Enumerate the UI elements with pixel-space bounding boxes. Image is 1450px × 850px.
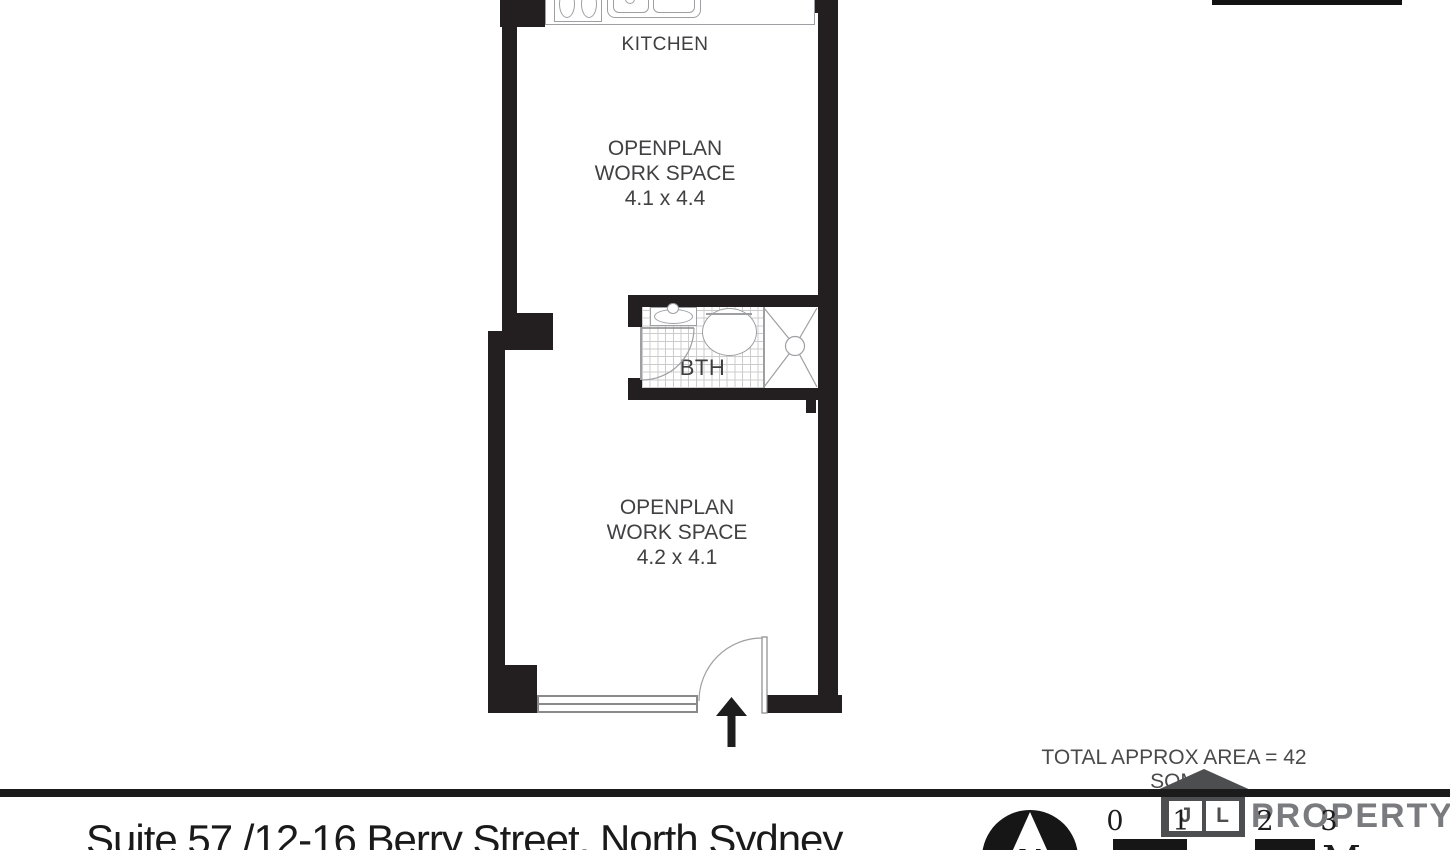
scale-bar-segment [1113,839,1187,850]
toilet-cistern-line [706,313,752,315]
compass-arrow-icon [1012,812,1048,850]
window-line-mid [537,703,698,705]
kitchen-label: KITCHEN [565,34,765,56]
shower-icon [764,308,817,387]
logo-letter-l: L [1206,801,1239,831]
wall-bath-left-upper [628,295,642,327]
shower-drain-icon [786,337,805,356]
cropped-header-bar [1212,0,1402,5]
bathroom-label: BTH [660,355,745,381]
bath-door-jamb [640,327,642,380]
scale-bar-segment [1255,839,1315,850]
north-compass-icon: N [0,0,1450,850]
logo-roof-layer [0,0,1450,850]
lower-room-line1: OPENPLAN [577,495,777,520]
wall-upper-left [502,0,517,333]
wall-bath-bottom [628,388,818,400]
entry-door-swing-arc [699,638,762,701]
upper-room-line1: OPENPLAN [565,136,765,161]
footer-divider [0,789,1450,797]
total-area-label: TOTAL APPROX AREA = 42 SQM [1024,746,1324,794]
wall-right-nub [806,400,816,413]
compass-circle [982,810,1078,850]
window-line-inner [537,711,698,713]
scale-tick-3: 3 [1309,806,1349,837]
floorplan-page: KITCHEN OPENPLAN WORK SPACE 4.1 x 4.4 BT… [0,0,1450,850]
compass-north-letter: N [1017,841,1043,850]
lower-room-line2: WORK SPACE [577,520,777,545]
wall-right [818,0,838,713]
wall-bath-top [628,295,818,307]
upper-room-line2: WORK SPACE [565,161,765,186]
entry-direction-arrow-icon [716,697,747,747]
scale-tick-1: 1 [1161,806,1201,837]
window-end-left [537,695,539,712]
shower-edge-line [763,307,765,388]
upper-room-label: OPENPLAN WORK SPACE 4.1 x 4.4 [565,136,765,211]
scale-tick-0: 0 [1095,806,1135,837]
address-title: Suite 57 /12-16 Berry Street, North Sydn… [86,816,842,850]
upper-room-dimensions: 4.1 x 4.4 [565,186,765,211]
wall-lower-left [488,331,505,713]
window-line-outer [537,695,698,697]
sink-drainer-icon [653,0,695,13]
scale-unit-label: M [1322,838,1361,850]
window-end-right [696,695,698,712]
wall-bottom-left-corner [488,665,537,713]
plan-overlay [0,0,1450,850]
wall-left-stub [502,313,553,350]
toilet-icon [702,308,757,356]
basin-tap-icon [667,303,679,314]
scale-tick-2: 2 [1245,806,1285,837]
lower-room-dimensions: 4.2 x 4.1 [577,545,777,570]
wall-bottom-right [765,695,842,713]
lower-room-label: OPENPLAN WORK SPACE 4.2 x 4.1 [577,495,777,570]
